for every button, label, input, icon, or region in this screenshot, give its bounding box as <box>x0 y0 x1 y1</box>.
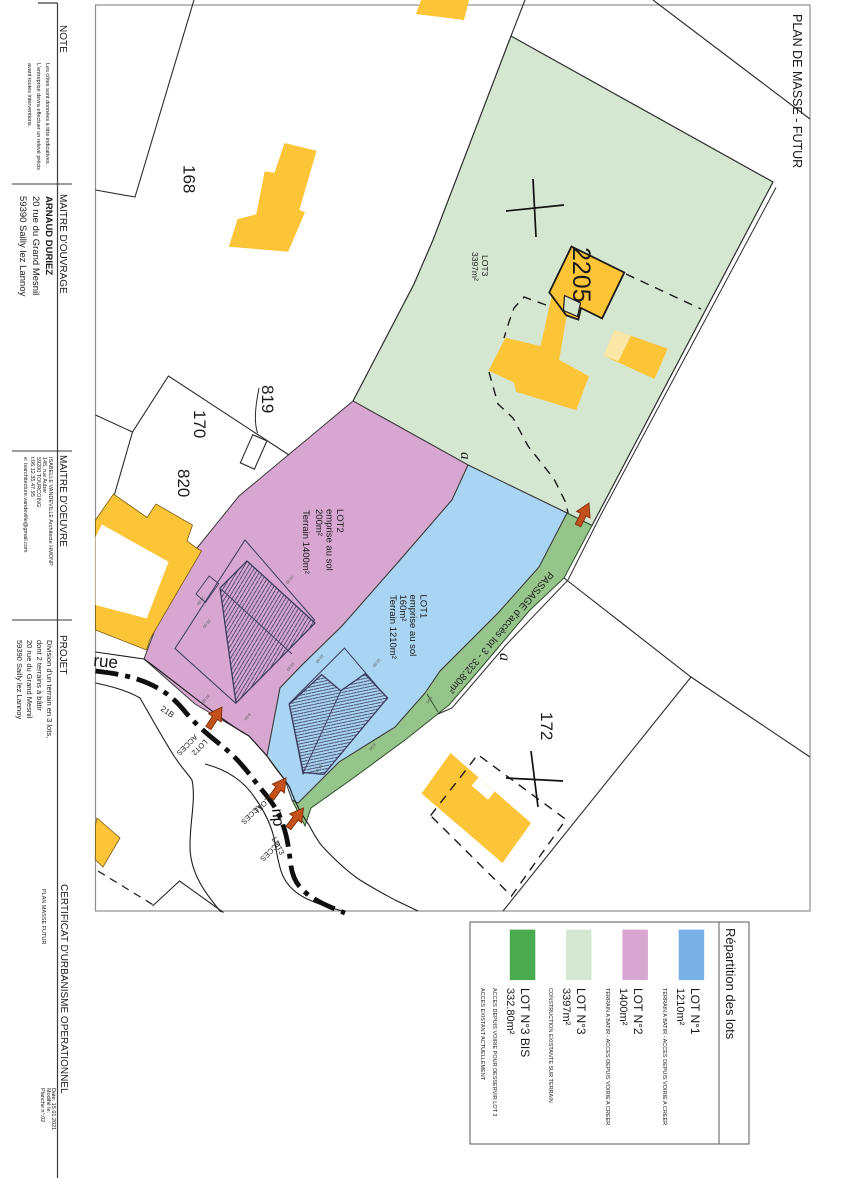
svg-text:CONSTRUCTION EXISTANTE SUR TER: CONSTRUCTION EXISTANTE SUR TERRAIN <box>547 988 553 1103</box>
svg-text:59390 Sailly lez Lannoy: 59390 Sailly lez Lannoy <box>15 640 24 719</box>
svg-text:Les côtes sont données à titre: Les côtes sont données à titre indicativ… <box>44 63 50 166</box>
svg-text:Division d'un terrain en 3 lot: Division d'un terrain en 3 lots, <box>45 640 54 738</box>
svg-text:1400m²: 1400m² <box>617 988 629 1026</box>
svg-text:du: du <box>267 808 285 827</box>
svg-text:TERRAIN A BATIR - ACCES DEPUIS: TERRAIN A BATIR - ACCES DEPUIS VOIRIE A … <box>604 988 610 1125</box>
svg-text:PLAN MASSE FUTUR: PLAN MASSE FUTUR <box>40 889 46 944</box>
svg-text:170: 170 <box>190 410 209 438</box>
svg-text:ARNAUD DURIEZ: ARNAUD DURIEZ <box>43 196 54 275</box>
svg-text:168: 168 <box>180 165 199 193</box>
svg-text:Terrain 1210m²: Terrain 1210m² <box>387 595 398 659</box>
svg-text:emprise au sol: emprise au sol <box>324 509 335 571</box>
svg-text:3397m²: 3397m² <box>560 988 572 1026</box>
svg-text:dont 2 terrains à bâtir: dont 2 terrains à bâtir <box>35 640 44 711</box>
svg-text:LOT N°3 BIS: LOT N°3 BIS <box>518 988 532 1057</box>
svg-text:20 rue du Grand Mesnil: 20 rue du Grand Mesnil <box>30 196 41 295</box>
svg-text:819: 819 <box>258 385 277 413</box>
svg-text:200m²: 200m² <box>313 509 324 536</box>
svg-text:Répartition des lots: Répartition des lots <box>723 928 738 1040</box>
svg-text:820: 820 <box>174 469 193 497</box>
svg-text:L'entreprise devra effectuer u: L'entreprise devra effectuer un relevé p… <box>35 63 41 170</box>
svg-text:a: a <box>496 653 513 661</box>
svg-text:e: isarchitecture.vandeville@g: e: isarchitecture.vandeville@gmail.com <box>22 457 28 553</box>
svg-text:3397m²: 3397m² <box>470 252 480 281</box>
svg-text:rue: rue <box>93 651 119 672</box>
svg-text:LOT N°2: LOT N°2 <box>631 988 645 1035</box>
svg-text:1210m²: 1210m² <box>674 988 686 1026</box>
svg-text:Terrain 1400m²: Terrain 1400m² <box>300 510 311 574</box>
svg-text:MAITRE D'OEUVRE: MAITRE D'OEUVRE <box>57 455 68 547</box>
svg-text:NOTE: NOTE <box>57 25 68 53</box>
svg-text:LOT3: LOT3 <box>480 255 490 277</box>
svg-text:TERRAIN A BATIR - ACCES DEPUIS: TERRAIN A BATIR - ACCES DEPUIS VOIRIE A … <box>661 988 667 1125</box>
svg-text:CERTIFICAT D'URBANISME OPERATI: CERTIFICAT D'URBANISME OPERATIONNEL <box>58 884 69 1094</box>
svg-text:2205: 2205 <box>567 247 595 303</box>
svg-text:LOT1: LOT1 <box>418 595 429 619</box>
svg-text:MAITRE D'OUVRAGE: MAITRE D'OUVRAGE <box>57 194 68 294</box>
svg-text:PLAN DE MASSE - FUTUR: PLAN DE MASSE - FUTUR <box>790 14 804 168</box>
svg-text:avant toutes interventions.: avant toutes interventions. <box>26 63 32 128</box>
svg-text:ACCES EXISTANT ACTUELLEMENT: ACCES EXISTANT ACTUELLEMENT <box>479 988 485 1081</box>
svg-text:59390 Sailly lez Lannoy: 59390 Sailly lez Lannoy <box>17 196 28 297</box>
svg-text:LOT N°1: LOT N°1 <box>688 988 702 1035</box>
svg-text:LOT N°3: LOT N°3 <box>574 988 588 1035</box>
svg-text:PROJET: PROJET <box>57 635 68 674</box>
svg-text:ACCES DEPUIS VOIRIE POUR DESSE: ACCES DEPUIS VOIRIE POUR DESSERVIR LOT 3 <box>491 988 497 1116</box>
svg-text:t:06.12.35.47.95: t:06.12.35.47.95 <box>29 457 35 497</box>
svg-text:332.80m²: 332.80m² <box>504 988 516 1035</box>
svg-text:20 rue du Grand Mesnil: 20 rue du Grand Mesnil <box>25 640 34 719</box>
svg-text:LOT2: LOT2 <box>334 509 345 533</box>
svg-text:Planche n°:02: Planche n°:02 <box>39 1088 45 1122</box>
svg-text:a: a <box>457 452 473 460</box>
svg-text:172: 172 <box>537 712 556 740</box>
